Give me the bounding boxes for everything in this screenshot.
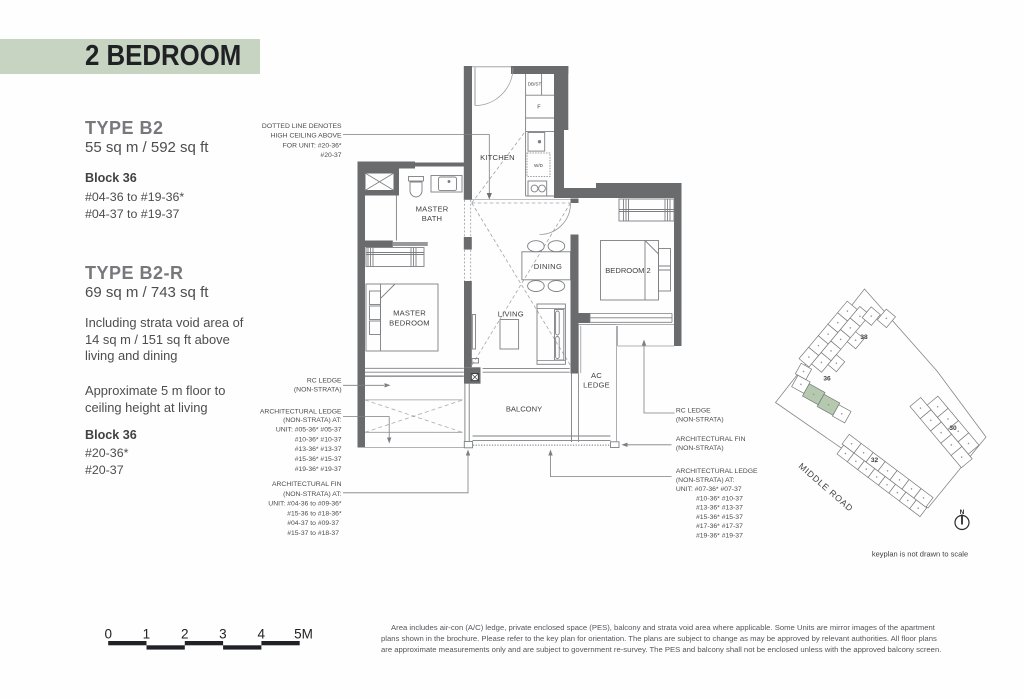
svg-text:MASTER: MASTER [393, 309, 426, 318]
svg-text:30: 30 [949, 425, 957, 432]
svg-text:LIVING: LIVING [498, 310, 524, 319]
svg-text:keyplan is not drawn to scale: keyplan is not drawn to scale [872, 550, 968, 559]
svg-text:#17-36* #17-37: #17-36* #17-37 [696, 523, 743, 530]
svg-text:36: 36 [823, 376, 831, 383]
svg-text:32: 32 [871, 457, 879, 464]
svg-text:(NON-STRATA): (NON-STRATA) [294, 387, 342, 394]
svg-text:#19-36* #19-37: #19-36* #19-37 [696, 532, 743, 539]
svg-text:W/D: W/D [534, 163, 544, 168]
svg-text:#15-36 to #18-36*: #15-36 to #18-36* [287, 510, 342, 517]
svg-text:DINING: DINING [534, 262, 562, 271]
svg-text:#13-36* #13-37: #13-36* #13-37 [696, 505, 743, 512]
svg-text:#15-36* #15-37: #15-36* #15-37 [696, 514, 743, 521]
svg-text:BEDROOM 2: BEDROOM 2 [605, 266, 651, 275]
svg-text:#04-37 to #09-37: #04-37 to #09-37 [287, 520, 339, 527]
svg-text:KITCHEN: KITCHEN [480, 153, 515, 162]
svg-text:0: 0 [104, 627, 112, 642]
svg-text:N: N [960, 509, 965, 516]
svg-text:#19-36* #19-37: #19-36* #19-37 [295, 466, 342, 473]
svg-text:ARCHITECTURAL FIN: ARCHITECTURAL FIN [272, 481, 342, 488]
svg-text:AC: AC [591, 371, 602, 380]
svg-text:3: 3 [219, 627, 227, 642]
svg-text:2: 2 [181, 627, 189, 642]
svg-text:F: F [537, 105, 541, 111]
svg-text:ARCHITECTURAL FIN: ARCHITECTURAL FIN [676, 436, 746, 443]
svg-text:(NON-STRATA) AT:: (NON-STRATA) AT: [283, 417, 342, 424]
svg-text:BEDROOM: BEDROOM [389, 318, 430, 327]
svg-text:38: 38 [860, 334, 868, 341]
svg-text:LEDGE: LEDGE [583, 381, 610, 390]
svg-text:MIDDLE ROAD: MIDDLE ROAD [797, 461, 855, 514]
svg-text:MASTER: MASTER [416, 204, 449, 213]
svg-text:(NON-STRATA) AT:: (NON-STRATA) AT: [283, 491, 342, 498]
svg-text:#15-37 to #18-37: #15-37 to #18-37 [287, 530, 339, 537]
svg-text:ARCHITECTURAL LEDGE: ARCHITECTURAL LEDGE [676, 468, 758, 475]
svg-text:#15-36* #15-37: #15-36* #15-37 [295, 456, 342, 463]
svg-text:(NON-STRATA): (NON-STRATA) [676, 445, 724, 452]
svg-text:RC LEDGE: RC LEDGE [676, 408, 711, 415]
svg-text:FOR UNIT: #20-36*: FOR UNIT: #20-36* [283, 142, 342, 149]
svg-text:BATH: BATH [422, 214, 443, 223]
svg-text:UNIT: #04-36 to #09-36*: UNIT: #04-36 to #09-36* [268, 501, 342, 508]
svg-text:ARCHITECTURAL LEDGE: ARCHITECTURAL LEDGE [260, 409, 342, 416]
svg-text:DB/ST: DB/ST [528, 82, 542, 87]
svg-text:UNIT: #07-36* #07-37: UNIT: #07-36* #07-37 [676, 486, 742, 493]
svg-text:#20-37: #20-37 [320, 152, 341, 159]
svg-text:(NON-STRATA) AT:: (NON-STRATA) AT: [676, 477, 735, 484]
svg-text:5M: 5M [294, 627, 313, 642]
svg-text:RC LEDGE: RC LEDGE [307, 378, 342, 385]
svg-text:1: 1 [143, 627, 151, 642]
svg-text:DOTTED LINE DENOTES: DOTTED LINE DENOTES [262, 123, 342, 130]
svg-text:HIGH CEILING ABOVE: HIGH CEILING ABOVE [271, 133, 342, 140]
svg-text:4: 4 [257, 627, 265, 642]
svg-text:UNIT: #05-36* #05-37: UNIT: #05-36* #05-37 [276, 427, 342, 434]
svg-text:#10-36* #10-37: #10-36* #10-37 [696, 496, 743, 503]
svg-text:#13-36* #13-37: #13-36* #13-37 [295, 446, 342, 453]
svg-text:#10-36* #10-37: #10-36* #10-37 [295, 436, 342, 443]
svg-text:(NON-STRATA): (NON-STRATA) [676, 417, 724, 424]
svg-text:BALCONY: BALCONY [506, 405, 542, 414]
